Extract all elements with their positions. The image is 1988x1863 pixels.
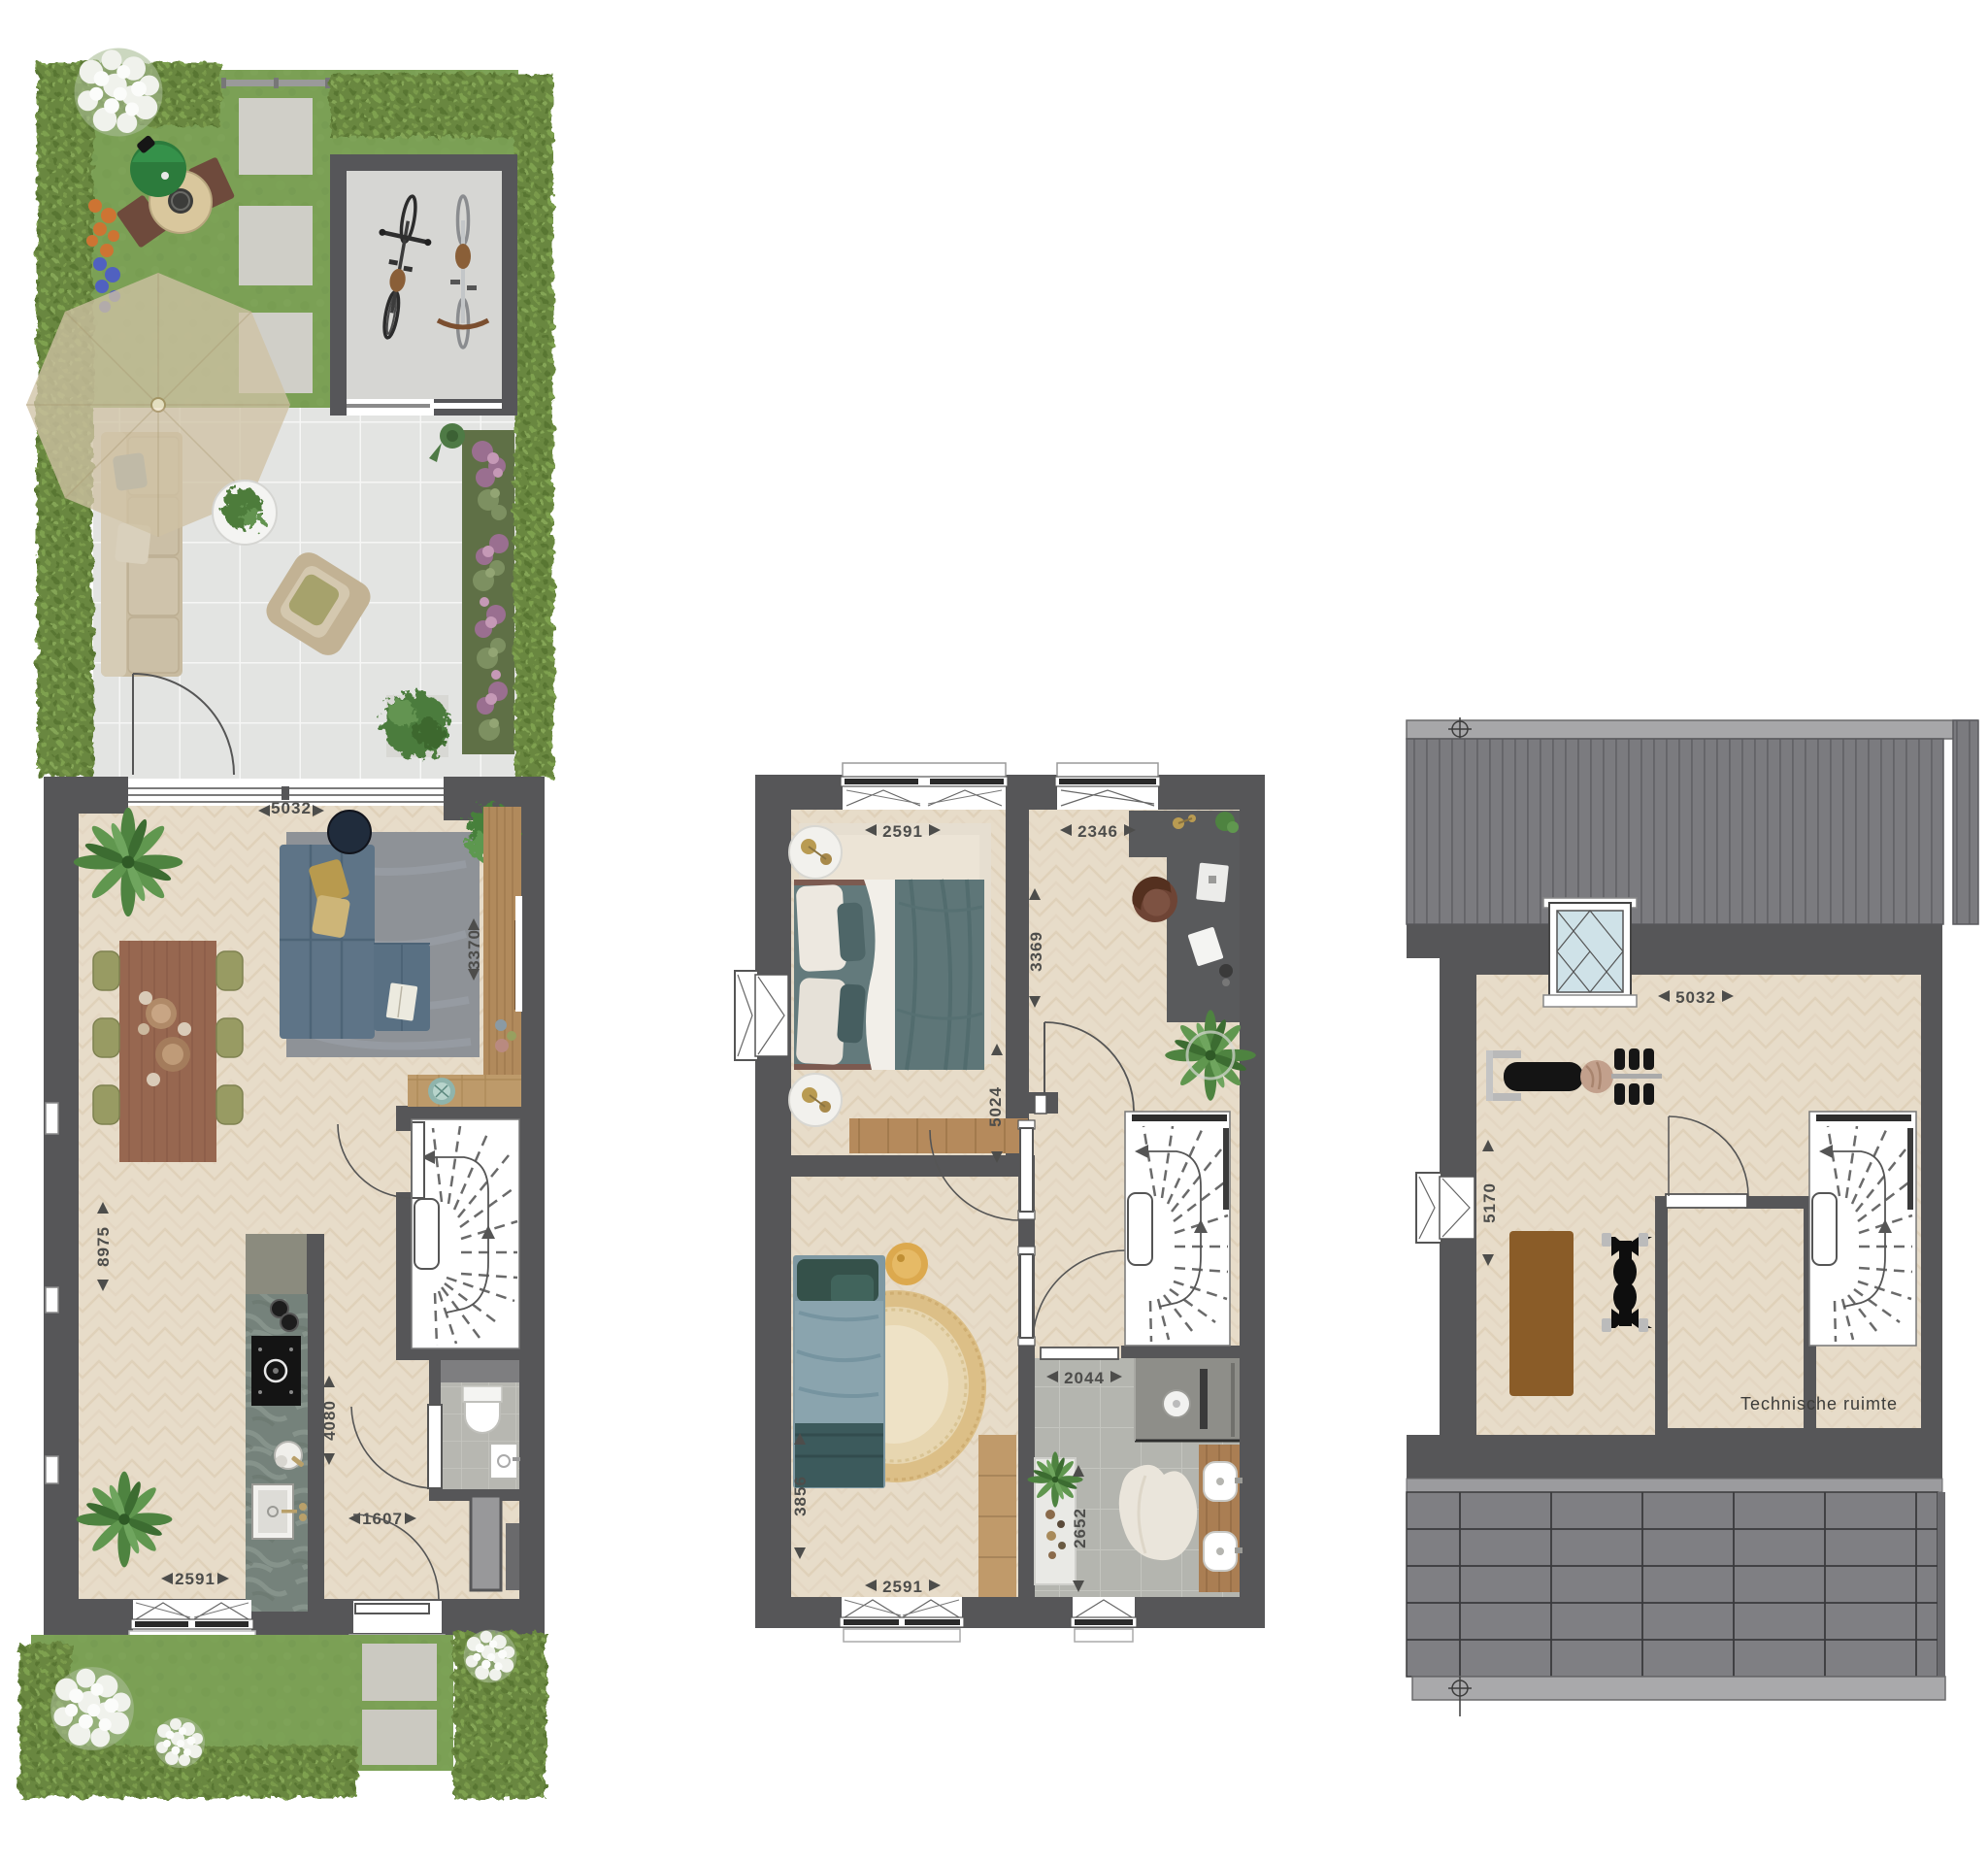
svg-text:3370: 3370: [465, 929, 483, 970]
svg-text:5170: 5170: [1480, 1182, 1499, 1223]
svg-text:Technische ruimte: Technische ruimte: [1740, 1394, 1898, 1414]
svg-text:2346: 2346: [1077, 822, 1118, 841]
svg-text:2044: 2044: [1064, 1369, 1105, 1387]
svg-text:5032: 5032: [1675, 988, 1716, 1007]
svg-text:4080: 4080: [320, 1400, 339, 1441]
svg-text:5032: 5032: [271, 799, 312, 817]
svg-text:8975: 8975: [94, 1226, 113, 1267]
svg-text:2591: 2591: [175, 1570, 215, 1588]
svg-text:3369: 3369: [1027, 931, 1045, 972]
svg-text:2591: 2591: [882, 822, 923, 841]
svg-text:5024: 5024: [986, 1086, 1005, 1127]
svg-text:2652: 2652: [1071, 1508, 1089, 1548]
svg-text:2591: 2591: [882, 1578, 923, 1596]
svg-text:3856: 3856: [791, 1476, 810, 1516]
